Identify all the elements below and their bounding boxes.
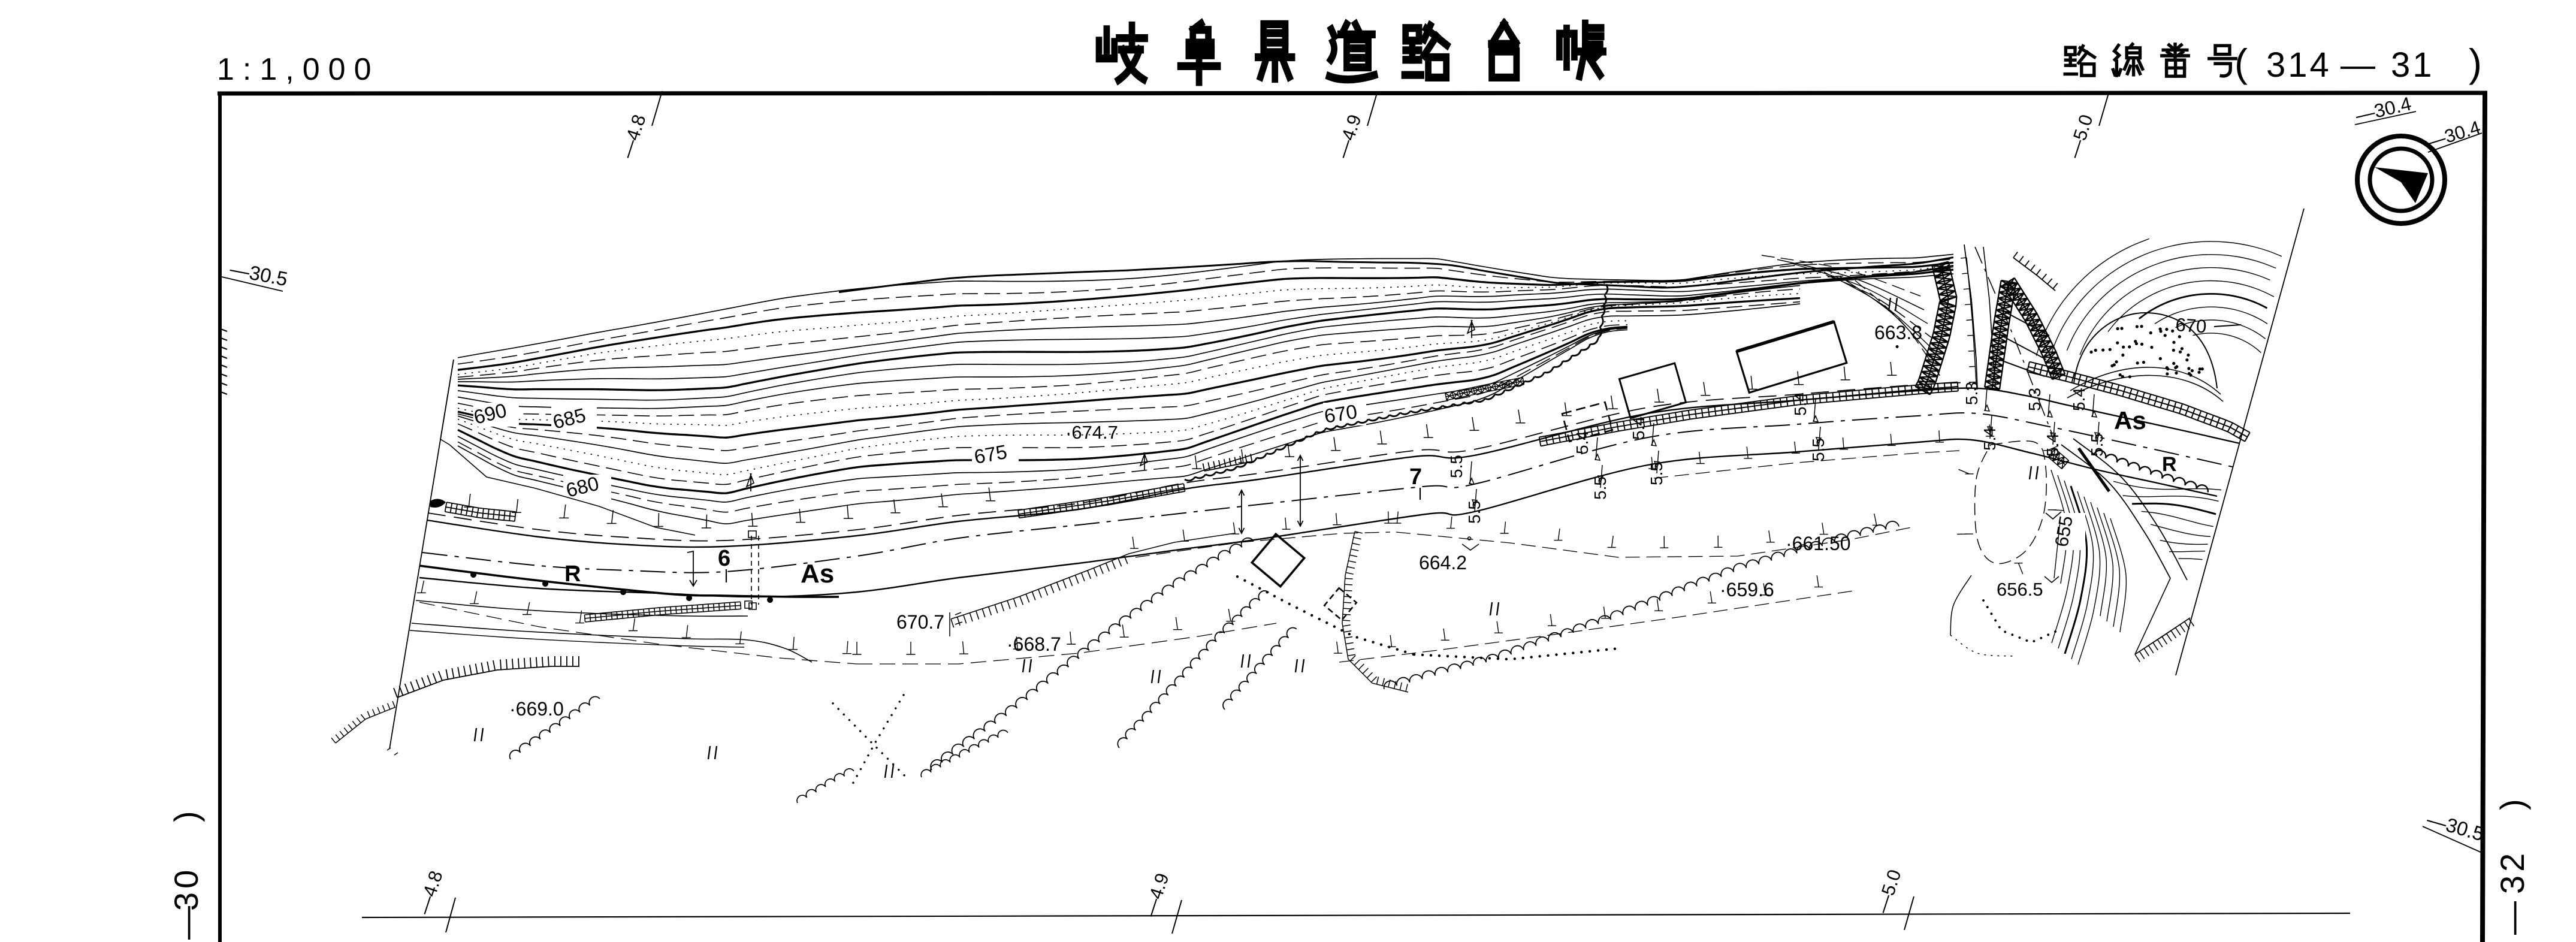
svg-text:R: R: [564, 561, 581, 587]
svg-text:—: —: [167, 906, 205, 940]
svg-text:·659.6: ·659.6: [1720, 579, 1774, 600]
svg-text:32: 32: [2493, 850, 2531, 894]
svg-text:R: R: [2162, 453, 2177, 476]
svg-text:664.2: 664.2: [1419, 552, 1467, 573]
svg-text:5.5: 5.5: [1447, 455, 1466, 478]
svg-text:656.5: 656.5: [1997, 579, 2043, 600]
svg-text:—: —: [2341, 46, 2375, 84]
svg-text:6: 6: [718, 546, 730, 571]
svg-text:5.3: 5.3: [2025, 388, 2044, 411]
svg-text:663.8: 663.8: [1874, 322, 1922, 343]
svg-text:31: 31: [2391, 46, 2435, 84]
svg-text:7: 7: [1409, 464, 1422, 490]
svg-text:5.4: 5.4: [1629, 416, 1648, 440]
svg-text:5.4: 5.4: [1573, 431, 1591, 454]
svg-text:): ): [2469, 41, 2482, 85]
svg-text:670: 670: [2175, 314, 2207, 337]
svg-text:·674.7: ·674.7: [1065, 422, 1118, 443]
svg-text:1:1,000: 1:1,000: [217, 52, 380, 87]
svg-text:—: —: [2493, 901, 2531, 935]
svg-text:): ): [167, 811, 205, 822]
svg-text:5.3: 5.3: [1962, 382, 1981, 405]
svg-text:·668.7: ·668.7: [1007, 633, 1061, 655]
svg-text:As: As: [801, 559, 834, 588]
svg-text:670.7: 670.7: [896, 611, 944, 633]
svg-text:5.4: 5.4: [2070, 388, 2088, 411]
svg-text:As: As: [2114, 406, 2146, 434]
svg-text:): ): [2493, 799, 2531, 810]
svg-text:·661.50: ·661.50: [1786, 533, 1851, 554]
svg-text:(: (: [2234, 41, 2248, 85]
svg-text:314: 314: [2266, 46, 2332, 84]
svg-text:·669.0: ·669.0: [509, 698, 564, 720]
svg-text:5.4: 5.4: [1791, 393, 1810, 416]
svg-text:30: 30: [167, 866, 205, 911]
